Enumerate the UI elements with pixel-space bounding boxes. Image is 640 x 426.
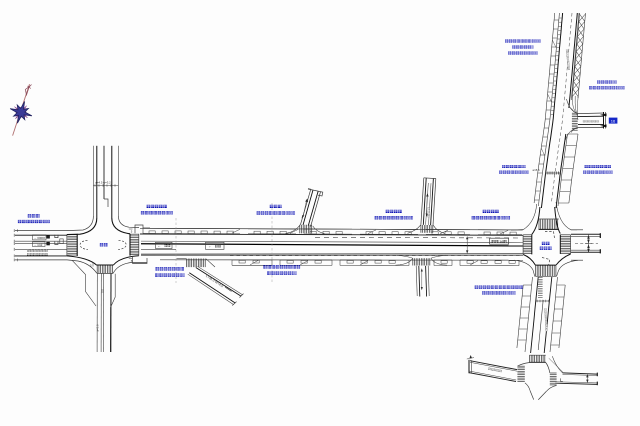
svg-text:16: 16 <box>499 240 503 244</box>
svg-text:a=4.5 w=3.2: a=4.5 w=3.2 <box>95 180 111 184</box>
svg-text:a=8.5: a=8.5 <box>532 168 540 172</box>
svg-text:←: ← <box>208 245 211 249</box>
svg-text:16: 16 <box>611 118 616 123</box>
svg-text:←: ← <box>158 244 161 248</box>
svg-text:←: ← <box>34 236 37 240</box>
svg-text:a=5.0: a=5.0 <box>96 324 100 332</box>
svg-text:←: ← <box>34 243 37 247</box>
